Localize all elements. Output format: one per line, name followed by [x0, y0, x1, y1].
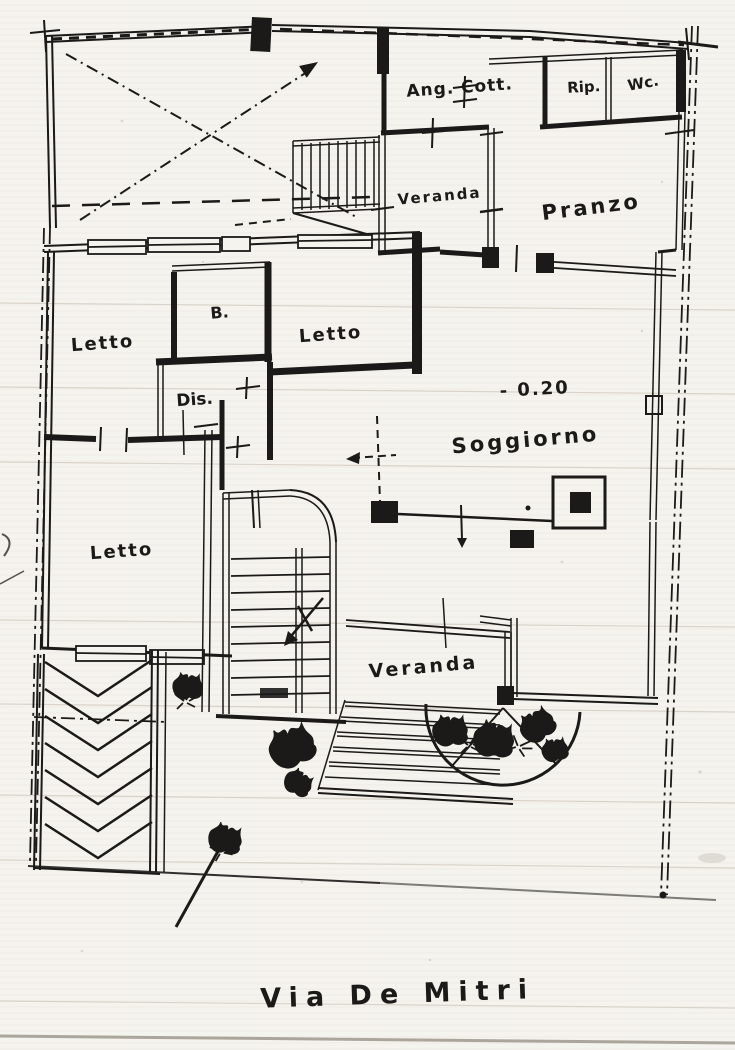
- plant-icon: [279, 764, 317, 802]
- room-label-veranda-bottom: Veranda: [368, 651, 479, 682]
- plant-icon: [266, 721, 319, 770]
- room-label-letto-n: Letto: [298, 322, 363, 347]
- room-label-letto-nw: Letto: [70, 331, 135, 356]
- bedroom-band-walls: [42, 232, 422, 648]
- main-staircase: [216, 490, 346, 722]
- level-annotation: - 0.20: [499, 377, 570, 402]
- driveway-hatch: [34, 650, 168, 874]
- upper-staircase: [235, 137, 380, 235]
- room-label-pranzo: Pranzo: [540, 189, 642, 225]
- room-label-veranda-top: Veranda: [397, 183, 482, 208]
- street-name: Via De Mitri: [260, 974, 536, 1015]
- entrance-arrow: [176, 828, 231, 927]
- veranda-bottom-walls: [346, 598, 514, 705]
- room-label-ang-cott: Ang. Cott.: [406, 74, 514, 101]
- terrace: [52, 54, 372, 220]
- room-label-letto-sw: Letto: [89, 539, 154, 564]
- scan-artifacts: [0, 120, 735, 1043]
- flower-bed: [426, 704, 580, 785]
- window-symbols: [88, 235, 372, 254]
- room-label-soggiorno: Soggiorno: [451, 422, 601, 459]
- room-label-wc: Wc.: [626, 72, 660, 95]
- room-label-rip: Rip.: [567, 77, 601, 97]
- room-label-dis: Dis.: [176, 389, 214, 411]
- floor-plan-canvas: Ang. Cott. Rip. Wc. Veranda Pranzo Letto…: [0, 0, 735, 1050]
- room-label-bagno: B.: [210, 302, 230, 323]
- hallway-walls: [44, 360, 270, 490]
